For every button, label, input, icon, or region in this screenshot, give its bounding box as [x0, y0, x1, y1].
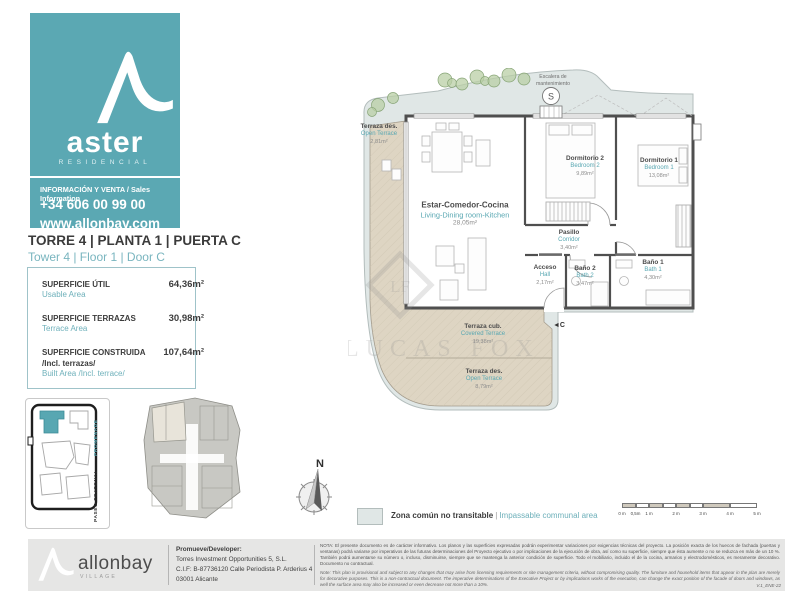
room-label-open-terrace-top: Terraza des. Open Terrace 2,81m²	[361, 123, 398, 145]
site-map-label-paseo: PASEO PEATONAL	[94, 458, 99, 522]
area-label-es: SUPERFICIE CONSTRUIDA	[42, 347, 182, 358]
area-row-built: SUPERFICIE CONSTRUIDA /Incl. terrazas/ B…	[42, 347, 182, 380]
floor-plan: S	[348, 68, 768, 480]
key-plan-drawing	[140, 396, 245, 522]
area-label-es: SUPERFICIE ÚTIL	[42, 279, 182, 290]
surface-areas-box: SUPERFICIE ÚTIL Usable Area 64,36m² SUPE…	[27, 267, 196, 389]
area-value: 107,64m²	[163, 347, 204, 358]
stair-label: Escalera de mantenimiento	[536, 74, 570, 88]
floor-key-plan	[140, 396, 245, 522]
legal-notes: NOTA: El presente documento es de caráct…	[320, 543, 780, 588]
version-label: V.1_ENE-22	[756, 583, 781, 588]
legal-note-es: NOTA: El presente documento es de caráct…	[320, 543, 780, 567]
footer-logo-sub: VILLAGE	[80, 574, 117, 580]
utility-box	[693, 124, 701, 140]
room-label-open-terrace-bottom: Terraza des. Open Terrace 8,79m²	[466, 368, 503, 390]
area-label-es2: /Incl. terrazas/	[42, 358, 182, 369]
legend-label-en: Impassable communal area	[499, 511, 597, 520]
unit-title-es: TORRE 4 | PLANTA 1 | PUERTA C	[28, 233, 241, 248]
scale-bar: 0 m 0,5m 1 m 2 m 3 m 4 m 5 m	[622, 503, 762, 521]
room-label-corridor: Pasillo Corridor 3,40m²	[558, 229, 580, 251]
developer-line: C.I.F: B-87736120 Calle Periodista P. Ar…	[176, 565, 331, 575]
brand-divider	[30, 176, 180, 178]
website-url: www.allonbay.com	[40, 216, 175, 231]
svg-text:LF: LF	[390, 277, 410, 296]
svg-text:S: S	[548, 92, 554, 102]
aster-logo-icon	[92, 41, 178, 133]
floorplan-brochure-page: aster RESIDENCIAL INFORMACIÓN Y VENTA / …	[0, 0, 800, 600]
room-label-bath1: Baño 1 Bath 1 4,30m²	[642, 259, 663, 281]
area-value: 64,36m²	[169, 279, 204, 290]
room-label-bedroom2: Dormitorio 2 Bedroom 2 9,89m²	[566, 155, 604, 177]
phone-number: +34 606 00 99 00	[40, 197, 175, 212]
area-label-en: Built Area /Incl. terrace/	[42, 369, 182, 380]
area-row-usable: SUPERFICIE ÚTIL Usable Area 64,36m²	[42, 279, 182, 301]
room-label-bedroom1: Dormitorio 1 Bedroom 1 13,08m²	[640, 157, 678, 179]
room-label-covered-terrace: Terraza cub. Covered Terrace 19,38m²	[461, 323, 505, 345]
developer-line: Torres Investment Opportunities 5, S.L.	[176, 555, 331, 565]
legend-text: Zona común no transitable|Impassable com…	[391, 511, 598, 520]
allonbay-logo-icon	[36, 544, 76, 584]
footer: allonbay VILLAGE Promueve/Developer: Tor…	[28, 539, 785, 591]
compass-north-label: N	[316, 458, 324, 470]
room-label-living: Estar-Comedor-Cocina Living-Dining room-…	[421, 200, 510, 227]
key-plan-highlight	[152, 402, 186, 442]
brand-name: aster	[30, 128, 180, 158]
developer-info: Promueve/Developer: Torres Investment Op…	[176, 545, 331, 585]
site-map-label-promenade: PROMENADE	[94, 404, 99, 456]
room-label-hall: Acceso Hall 2,17m²	[534, 264, 557, 286]
room-label-bath2: Baño 2 Bath 2 3,47m²	[574, 265, 595, 287]
area-label-en: Terrace Area	[42, 324, 182, 335]
area-value: 30,98m²	[169, 313, 204, 324]
legend-label-es: Zona común no transitable	[391, 511, 493, 520]
legend-swatch	[357, 508, 383, 525]
legal-note-en: Note: This plan is provisional and subje…	[320, 570, 780, 588]
brand-box: aster RESIDENCIAL INFORMACIÓN Y VENTA / …	[30, 13, 180, 228]
site-map-highlight	[40, 411, 64, 433]
entrance-door-marker: ◄C	[553, 322, 565, 329]
brand-subtitle: RESIDENCIAL	[30, 159, 180, 166]
area-label-es: SUPERFICIE TERRAZAS	[42, 313, 182, 324]
footer-logo-name: allonbay	[78, 553, 153, 575]
developer-line: 03001 Alicante	[176, 575, 331, 585]
developer-title: Promueve/Developer:	[176, 545, 331, 555]
unit-title-en: Tower 4 | Floor 1 | Door C	[28, 250, 165, 264]
area-label-en: Usable Area	[42, 290, 182, 301]
svg-text:LUCAS FOX: LUCAS FOX	[348, 336, 540, 362]
floor-plan-drawing: S	[348, 68, 768, 480]
footer-divider	[168, 545, 169, 585]
footer-divider	[314, 545, 315, 585]
area-row-terrace: SUPERFICIE TERRAZAS Terrace Area 30,98m²	[42, 313, 182, 335]
